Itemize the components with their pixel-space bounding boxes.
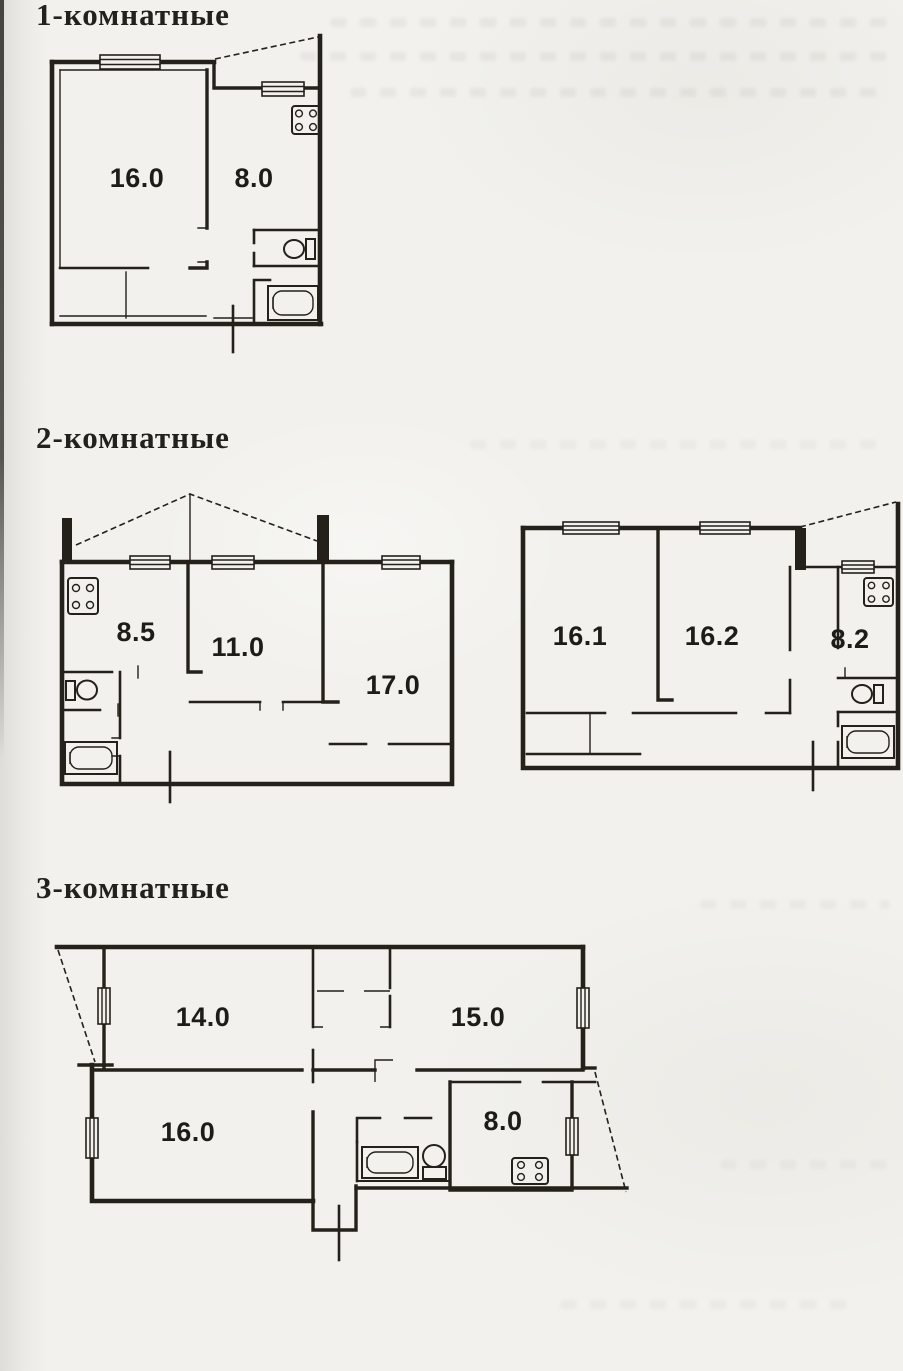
room-area-label: 16.1 xyxy=(553,621,608,651)
room-area-label: 17.0 xyxy=(366,670,421,700)
door-jamb xyxy=(198,228,207,262)
balcony-hatch-line xyxy=(800,502,896,527)
room-area-label: 11.0 xyxy=(211,632,264,662)
room-area-label: 14.0 xyxy=(176,1002,231,1032)
room-area-label: 8.0 xyxy=(483,1106,522,1136)
stove-icon xyxy=(864,578,893,606)
bathtub-icon xyxy=(65,742,117,774)
bleedthrough-smudge xyxy=(350,88,890,97)
door-jamb xyxy=(260,702,283,710)
wall-stub xyxy=(795,528,806,570)
window-symbol xyxy=(382,556,420,569)
room-area-label: 15.0 xyxy=(451,1002,506,1032)
bathtub-icon xyxy=(268,286,318,320)
floor-plan-two-room-right: 16.1 16.2 8.2 xyxy=(513,493,903,805)
bath-wall xyxy=(357,1118,380,1142)
window-symbol xyxy=(212,556,254,569)
partition-wall xyxy=(190,262,207,268)
bleedthrough-smudge xyxy=(300,52,890,61)
toilet-icon xyxy=(423,1145,446,1179)
door-jamb xyxy=(375,1060,393,1082)
balcony-hatch-line xyxy=(76,494,317,545)
window-symbol xyxy=(566,1118,578,1155)
bleedthrough-smudge xyxy=(560,1300,860,1309)
wc-wall xyxy=(254,230,320,266)
room-area-label: 8.2 xyxy=(830,624,869,654)
balcony-hatch-line xyxy=(595,1072,626,1192)
floor-plan-two-room-left: 8.5 11.0 17.0 xyxy=(55,478,460,810)
room-area-label: 8.0 xyxy=(234,163,273,193)
stove-icon xyxy=(68,578,98,614)
wall-stub xyxy=(317,515,329,564)
toilet-icon xyxy=(852,685,883,703)
room-area-label: 16.2 xyxy=(685,621,740,651)
scanned-book-page: 1-комнатные xyxy=(0,0,903,1371)
room-area-label: 8.5 xyxy=(116,617,155,647)
balcony-hatch-line xyxy=(58,950,95,1062)
window-symbol xyxy=(842,561,874,573)
floor-plan-one-room: 16.0 8.0 xyxy=(40,28,340,358)
bathtub-icon xyxy=(362,1147,418,1178)
stove-icon xyxy=(512,1158,548,1184)
balcony-hatch-line xyxy=(215,37,318,59)
partition-wall xyxy=(658,528,672,700)
vestibule-wall xyxy=(313,1112,356,1230)
partition-wall xyxy=(188,562,201,672)
toilet-icon xyxy=(66,681,97,701)
window-symbol xyxy=(563,522,619,534)
room-area-label: 16.0 xyxy=(110,163,165,193)
section-title-3-room: 3-комнатные xyxy=(36,870,230,906)
bleedthrough-smudge xyxy=(330,18,890,27)
window-symbol xyxy=(577,988,589,1028)
window-symbol xyxy=(100,55,160,69)
wall-stub xyxy=(62,518,72,564)
bleedthrough-smudge xyxy=(470,440,890,449)
window-symbol xyxy=(98,988,110,1024)
floor-plan-three-room: 14.0 15.0 16.0 8.0 xyxy=(48,928,648,1273)
partition-wall xyxy=(323,562,338,702)
bathtub-icon xyxy=(842,726,894,758)
section-title-2-room: 2-комнатные xyxy=(36,420,230,456)
window-symbol xyxy=(130,556,170,569)
window-symbol xyxy=(262,82,304,96)
bleedthrough-smudge xyxy=(700,900,890,909)
page-spine-shadow xyxy=(0,0,4,760)
room-area-label: 16.0 xyxy=(161,1117,216,1147)
window-symbol xyxy=(700,522,750,534)
toilet-icon xyxy=(284,239,315,259)
stove-icon xyxy=(292,106,320,134)
window-symbol xyxy=(86,1118,98,1158)
bleedthrough-smudge xyxy=(720,1160,890,1169)
